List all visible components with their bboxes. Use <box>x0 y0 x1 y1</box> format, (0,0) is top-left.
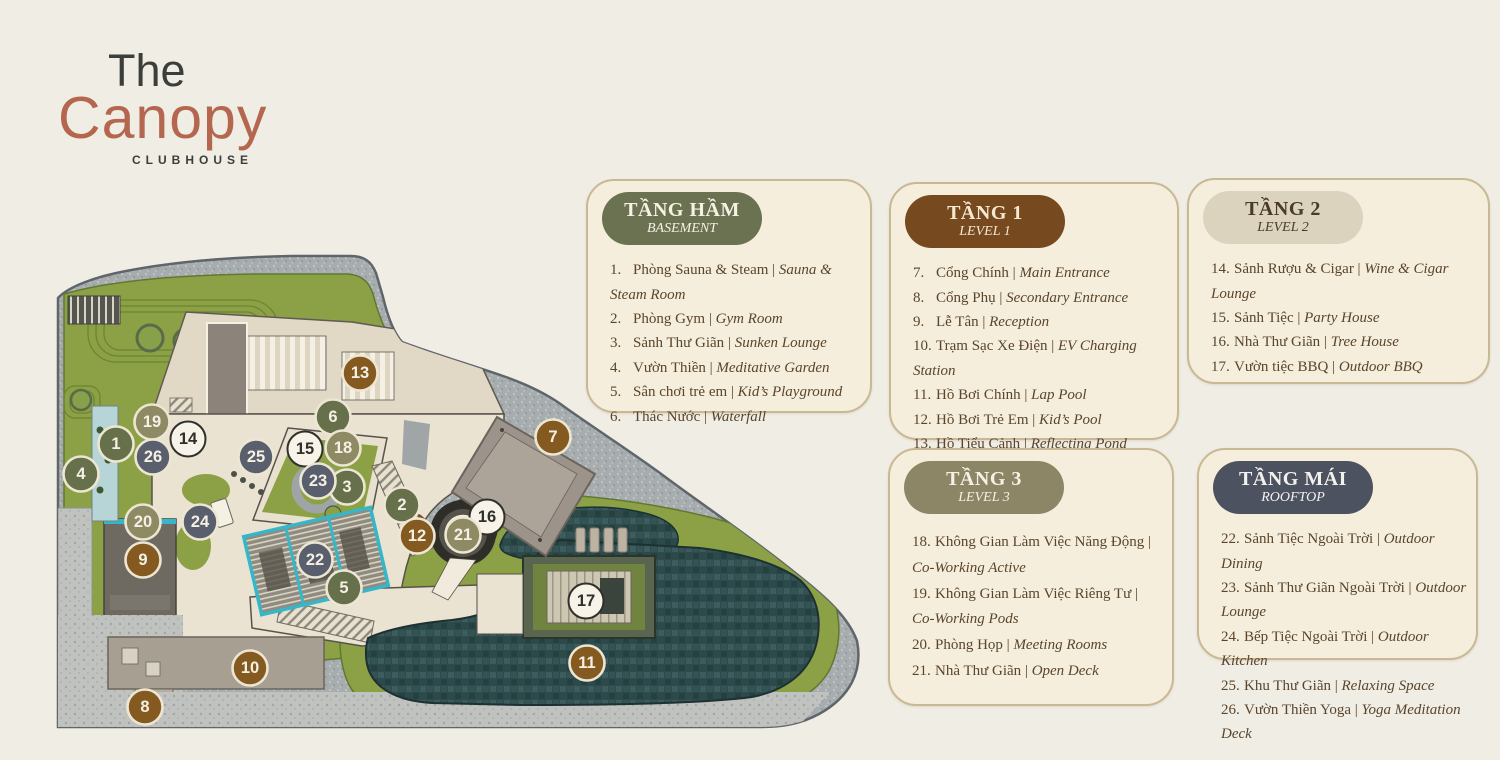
legend-item-21: 21.Nhà Thư Giãn | Open Deck <box>912 659 1164 685</box>
legend-item-number: 25. <box>1221 674 1244 698</box>
legend-item-vietnamese: Sảnh Rượu & Cigar | <box>1234 261 1364 277</box>
legend-item-vietnamese: Khu Thư Giãn | <box>1244 678 1342 694</box>
legend-subtitle-level1: LEVEL 1 <box>905 224 1065 240</box>
legend-item-vietnamese: Cổng Chính | <box>936 265 1019 281</box>
legend-subtitle-rooftop: ROOFTOP <box>1213 490 1373 506</box>
legend-item-25: 25.Khu Thư Giãn | Relaxing Space <box>1221 674 1468 698</box>
legend-items-level2: 14.Sảnh Rượu & Cigar | Wine & Cigar Loun… <box>1189 244 1488 379</box>
legend-items-basement: 1.Phòng Sauna & Steam | Sauna & Steam Ro… <box>588 245 870 429</box>
legend-card-rooftop: TẦNG MÁI ROOFTOP 22.Sảnh Tiệc Ngoài Trời… <box>1197 448 1478 660</box>
legend-item-number: 20. <box>912 633 935 659</box>
legend-item-1: 1.Phòng Sauna & Steam | Sauna & Steam Ro… <box>610 258 862 307</box>
legend-item-number: 8. <box>913 286 936 310</box>
ev-station-building <box>108 637 324 689</box>
ev-station-pad <box>122 648 138 664</box>
map-marker-label-10: 10 <box>241 659 259 677</box>
map-marker-label-1: 1 <box>111 435 120 453</box>
map-marker-label-16: 16 <box>478 508 496 526</box>
legend-item-number: 15. <box>1211 306 1234 330</box>
map-marker-label-5: 5 <box>339 579 348 597</box>
legend-item-19: 19.Không Gian Làm Việc Riêng Tư | Co-Wor… <box>912 582 1164 634</box>
bbq-island-dock <box>477 574 523 634</box>
legend-item-vietnamese: Bếp Tiệc Ngoài Trời | <box>1244 629 1378 645</box>
legend-item-english: Outdoor BBQ <box>1339 359 1423 375</box>
map-marker-label-24: 24 <box>191 513 210 531</box>
map-marker-label-6: 6 <box>328 408 337 426</box>
map-marker-label-23: 23 <box>309 472 327 490</box>
legend-item-english: Meditative Garden <box>716 360 829 376</box>
map-marker-label-3: 3 <box>342 478 351 496</box>
map-marker-label-8: 8 <box>140 698 149 716</box>
reception-building-band <box>110 595 170 610</box>
legend-item-number: 11. <box>913 383 936 407</box>
legend-item-number: 2. <box>610 307 633 331</box>
roof-stair-hatch <box>170 398 192 412</box>
legend-item-vietnamese: Không Gian Làm Việc Năng Động | <box>935 534 1151 550</box>
legend-item-vietnamese: Nhà Thư Giãn | <box>935 663 1032 679</box>
legend-item-english: Relaxing Space <box>1342 678 1435 694</box>
legend-item-number: 5. <box>610 380 633 404</box>
legend-item-3: 3.Sảnh Thư Giãn | Sunken Lounge <box>610 331 862 355</box>
legend-items-level1: 7.Cổng Chính | Main Entrance8.Cổng Phụ |… <box>891 248 1177 456</box>
service-slab-building <box>207 323 247 428</box>
map-marker-label-13: 13 <box>351 364 369 382</box>
roof-skylight-strips <box>246 336 326 390</box>
legend-item-16: 16.Nhà Thư Giãn | Tree House <box>1211 330 1480 354</box>
legend-item-english: Waterfall <box>711 409 766 425</box>
legend-item-9: 9.Lễ Tân | Reception <box>913 310 1169 334</box>
legend-title-basement: TẦNG HẦM <box>602 199 762 221</box>
legend-item-english: Reception <box>989 314 1049 330</box>
legend-item-vietnamese: Nhà Thư Giãn | <box>1234 334 1331 350</box>
legend-item-5: 5.Sân chơi trẻ em | Kid’s Playground <box>610 380 862 404</box>
legend-item-15: 15.Sảnh Tiệc | Party House <box>1211 306 1480 330</box>
legend-item-vietnamese: Thác Nước | <box>633 409 711 425</box>
legend-item-number: 12. <box>913 408 936 432</box>
legend-item-22: 22.Sảnh Tiệc Ngoài Trời | Outdoor Dining <box>1221 527 1468 576</box>
legend-item-english: Co-Working Active <box>912 560 1026 576</box>
legend-item-8: 8.Cổng Phụ | Secondary Entrance <box>913 286 1169 310</box>
legend-item-english: Party House <box>1304 310 1379 326</box>
legend-item-7: 7.Cổng Chính | Main Entrance <box>913 261 1169 285</box>
legend-item-vietnamese: Vườn tiệc BBQ | <box>1234 359 1339 375</box>
legend-title-level2: TẦNG 2 <box>1203 198 1363 220</box>
legend-item-english: Kid’s Playground <box>738 384 843 400</box>
legend-subtitle-level3: LEVEL 3 <box>904 490 1064 506</box>
legend-item-number: 17. <box>1211 355 1234 379</box>
legend-item-23: 23.Sảnh Thư Giãn Ngoài Trời | Outdoor Lo… <box>1221 576 1468 625</box>
map-marker-label-9: 9 <box>138 551 147 569</box>
legend-item-english: Open Deck <box>1032 663 1099 679</box>
legend-item-number: 10. <box>913 334 936 358</box>
legend-subtitle-basement: BASEMENT <box>602 221 762 237</box>
map-marker-label-4: 4 <box>76 465 86 483</box>
walkway-north <box>402 420 430 470</box>
legend-item-vietnamese: Phòng Sauna & Steam | <box>633 262 779 278</box>
legend-item-11: 11.Hồ Bơi Chính | Lap Pool <box>913 383 1169 407</box>
legend-item-vietnamese: Phòng Gym | <box>633 311 716 327</box>
legend-pill-basement: TẦNG HẦM BASEMENT <box>602 192 762 245</box>
legend-item-number: 7. <box>913 261 936 285</box>
map-marker-label-12: 12 <box>408 527 426 545</box>
cobble-strip-west <box>58 508 92 628</box>
legend-item-number: 24. <box>1221 625 1244 649</box>
legend-item-17: 17.Vườn tiệc BBQ | Outdoor BBQ <box>1211 355 1480 379</box>
map-marker-label-17: 17 <box>577 592 595 610</box>
legend-item-number: 16. <box>1211 330 1234 354</box>
legend-item-vietnamese: Sảnh Tiệc | <box>1234 310 1304 326</box>
legend-item-english: Sunken Lounge <box>735 335 827 351</box>
legend-item-number: 18. <box>912 530 935 556</box>
legend-item-number: 19. <box>912 582 935 608</box>
legend-item-24: 24.Bếp Tiệc Ngoài Trời | Outdoor Kitchen <box>1221 625 1468 674</box>
legend-item-26: 26.Vườn Thiền Yoga | Yoga Meditation Dec… <box>1221 698 1468 747</box>
clubhouse-roof <box>152 312 504 414</box>
map-marker-label-15: 15 <box>296 440 314 458</box>
map-marker-label-20: 20 <box>134 513 152 531</box>
legend-item-number: 26. <box>1221 698 1244 722</box>
legend-item-english: Kid’s Pool <box>1039 412 1102 428</box>
legend-item-vietnamese: Sảnh Tiệc Ngoài Trời | <box>1244 531 1384 547</box>
legend-item-english: Co-Working Pods <box>912 611 1019 627</box>
legend-item-number: 6. <box>610 405 633 429</box>
legend-pill-level3: TẦNG 3 LEVEL 3 <box>904 461 1064 514</box>
legend-item-vietnamese: Sảnh Thư Giãn Ngoài Trời | <box>1244 580 1415 596</box>
map-marker-label-22: 22 <box>306 551 324 569</box>
ev-station-pad-2 <box>146 662 160 676</box>
map-marker-label-25: 25 <box>247 448 265 466</box>
legend-item-english: Lap Pool <box>1031 387 1086 403</box>
ramp-hatch <box>68 296 120 324</box>
map-marker-label-2: 2 <box>397 496 406 514</box>
legend-item-20: 20.Phòng Họp | Meeting Rooms <box>912 633 1164 659</box>
legend-item-vietnamese: Hồ Bơi Chính | <box>936 387 1031 403</box>
legend-item-vietnamese: Hồ Bơi Trẻ Em | <box>936 412 1039 428</box>
map-marker-label-7: 7 <box>548 428 557 446</box>
legend-item-number: 1. <box>610 258 633 282</box>
map-marker-label-26: 26 <box>144 448 162 466</box>
map-marker-label-19: 19 <box>143 413 161 431</box>
legend-item-number: 3. <box>610 331 633 355</box>
legend-pill-rooftop: TẦNG MÁI ROOFTOP <box>1213 461 1373 514</box>
legend-item-number: 9. <box>913 310 936 334</box>
legend-item-english: Gym Room <box>716 311 783 327</box>
legend-item-18: 18.Không Gian Làm Việc Năng Động | Co-Wo… <box>912 530 1164 582</box>
map-marker-label-11: 11 <box>578 654 595 672</box>
legend-item-vietnamese: Sân chơi trẻ em | <box>633 384 738 400</box>
legend-item-6: 6.Thác Nước | Waterfall <box>610 405 862 429</box>
legend-item-12: 12.Hồ Bơi Trẻ Em | Kid’s Pool <box>913 408 1169 432</box>
legend-item-vietnamese: Phòng Họp | <box>935 637 1013 653</box>
legend-item-vietnamese: Vườn Thiền Yoga | <box>1244 702 1362 718</box>
legend-items-rooftop: 22.Sảnh Tiệc Ngoài Trời | Outdoor Dining… <box>1199 514 1476 747</box>
legend-item-number: 23. <box>1221 576 1244 600</box>
legend-item-vietnamese: Sảnh Thư Giãn | <box>633 335 735 351</box>
legend-item-vietnamese: Lễ Tân | <box>936 314 989 330</box>
legend-item-number: 21. <box>912 659 935 685</box>
legend-pill-level1: TẦNG 1 LEVEL 1 <box>905 195 1065 248</box>
legend-item-10: 10.Trạm Sạc Xe Điện | EV Charging Statio… <box>913 334 1169 383</box>
legend-item-number: 22. <box>1221 527 1244 551</box>
map-marker-label-21: 21 <box>454 526 472 544</box>
legend-item-english: Secondary Entrance <box>1006 290 1128 306</box>
legend-item-4: 4.Vườn Thiền | Meditative Garden <box>610 356 862 380</box>
legend-card-level1: TẦNG 1 LEVEL 1 7.Cổng Chính | Main Entra… <box>889 182 1179 440</box>
legend-item-english: Main Entrance <box>1019 265 1109 281</box>
legend-card-basement: TẦNG HẦM BASEMENT 1.Phòng Sauna & Steam … <box>586 179 872 413</box>
legend-item-2: 2.Phòng Gym | Gym Room <box>610 307 862 331</box>
map-marker-label-18: 18 <box>334 439 352 457</box>
legend-pill-level2: TẦNG 2 LEVEL 2 <box>1203 191 1363 244</box>
legend-item-vietnamese: Trạm Sạc Xe Điện | <box>936 338 1058 354</box>
legend-item-14: 14.Sảnh Rượu & Cigar | Wine & Cigar Loun… <box>1211 257 1480 306</box>
legend-item-vietnamese: Không Gian Làm Việc Riêng Tư | <box>935 586 1138 602</box>
legend-items-level3: 18.Không Gian Làm Việc Năng Động | Co-Wo… <box>890 514 1172 685</box>
legend-card-level3: TẦNG 3 LEVEL 3 18.Không Gian Làm Việc Nă… <box>888 448 1174 706</box>
legend-title-rooftop: TẦNG MÁI <box>1213 468 1373 490</box>
legend-item-vietnamese: Vườn Thiền | <box>633 360 716 376</box>
legend-card-level2: TẦNG 2 LEVEL 2 14.Sảnh Rượu & Cigar | Wi… <box>1187 178 1490 384</box>
map-marker-label-14: 14 <box>179 430 198 448</box>
legend-item-english: Tree House <box>1331 334 1399 350</box>
legend-item-number: 14. <box>1211 257 1234 281</box>
legend-item-number: 4. <box>610 356 633 380</box>
legend-item-english: Meeting Rooms <box>1013 637 1107 653</box>
legend-subtitle-level2: LEVEL 2 <box>1203 220 1363 236</box>
legend-title-level3: TẦNG 3 <box>904 468 1064 490</box>
legend-title-level1: TẦNG 1 <box>905 202 1065 224</box>
legend-item-vietnamese: Cổng Phụ | <box>936 290 1006 306</box>
